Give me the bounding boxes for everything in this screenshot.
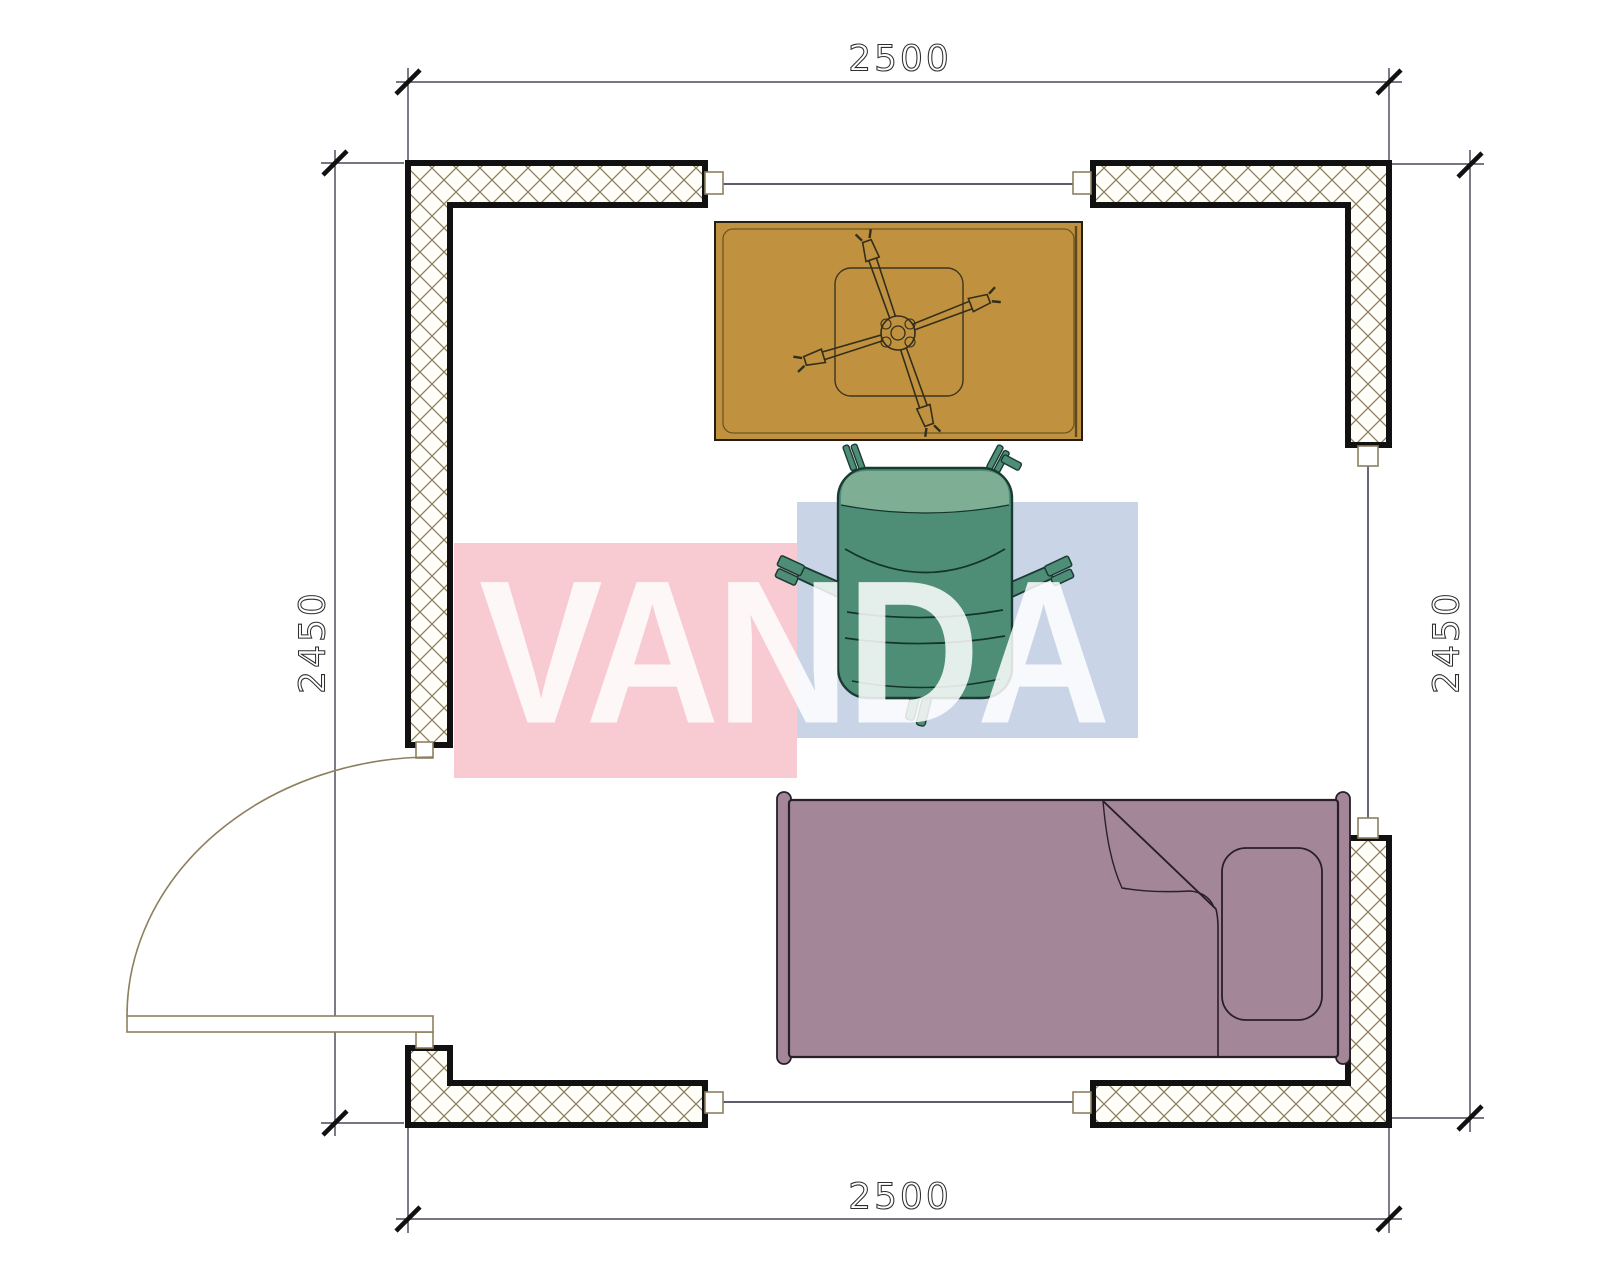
jamb-block bbox=[1073, 1092, 1091, 1113]
jamb-block bbox=[1073, 172, 1091, 194]
floor-plan-canvas: 2500 2500 2450 2450 VANDA bbox=[0, 0, 1600, 1280]
jamb-block bbox=[1358, 446, 1378, 466]
wall-bottom-left bbox=[408, 1048, 705, 1125]
door-leaf bbox=[127, 1016, 433, 1032]
jamb-block bbox=[705, 172, 723, 194]
dim-label-left: 2450 bbox=[293, 590, 334, 694]
desk bbox=[715, 222, 1082, 440]
watermark-text: VANDA bbox=[479, 535, 1107, 770]
chair-headrest bbox=[841, 471, 1009, 513]
single-bed bbox=[777, 792, 1350, 1064]
dim-label-right: 2450 bbox=[1427, 590, 1468, 694]
door bbox=[127, 757, 433, 1032]
bed-mattress bbox=[789, 800, 1338, 1057]
jamb-block bbox=[416, 742, 433, 758]
desk-top bbox=[715, 222, 1082, 440]
door-swing-arc bbox=[127, 757, 433, 1016]
jamb-block bbox=[1358, 818, 1378, 838]
wall-top-right bbox=[1093, 163, 1389, 445]
jamb-block bbox=[705, 1092, 723, 1113]
dim-label-bottom: 2500 bbox=[848, 1177, 952, 1218]
jamb-block bbox=[416, 1032, 433, 1048]
dim-label-top: 2500 bbox=[848, 39, 952, 80]
